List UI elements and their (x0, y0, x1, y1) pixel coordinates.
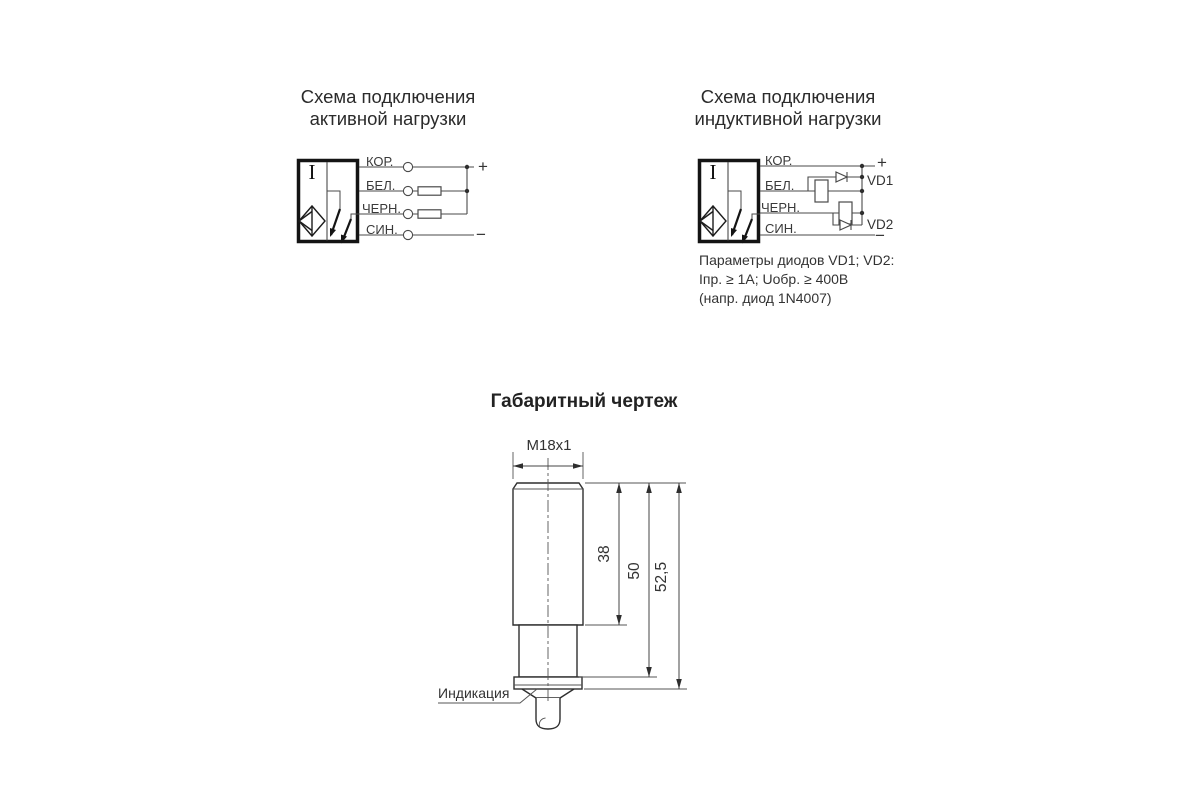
diode-note-line3: (напр. диод 1N4007) (699, 290, 832, 306)
minus-terminal-label: − (474, 225, 488, 245)
dim-arrow (616, 483, 622, 493)
diode-vd1-icon (836, 172, 847, 182)
diode-label-vd1: VD1 (867, 173, 893, 188)
inductive-load (815, 180, 828, 202)
wire-label-black: ЧЕРН. (362, 201, 401, 216)
dim-label-38: 38 (596, 537, 614, 571)
wire-label-white: БЕЛ. (366, 178, 395, 193)
diode-note-line2: Iпр. ≥ 1А; Uобр. ≥ 400В (699, 271, 848, 287)
diode-label-vd2: VD2 (867, 217, 893, 232)
datasheet-page: Схема подключения активной нагрузки I КО… (0, 0, 1200, 800)
dim-arrow (513, 463, 523, 469)
terminal-circle (403, 162, 412, 171)
junction-dot (860, 211, 864, 215)
load-resistor (418, 187, 441, 195)
dim-arrow (676, 483, 682, 493)
junction-dot (465, 189, 469, 193)
active-schematic-title-line2: активной нагрузки (278, 108, 498, 130)
dim-arrow (573, 463, 583, 469)
sensor-marking: I (705, 160, 721, 185)
plus-terminal-label: + (476, 157, 490, 177)
terminal-circle (403, 209, 412, 218)
wire-label-blue: СИН. (366, 222, 398, 237)
wire-label-white: БЕЛ. (765, 178, 794, 193)
indication-label: Индикация (438, 685, 509, 701)
dim-arrow (676, 679, 682, 689)
load-resistor (418, 210, 441, 218)
wire-label-brown: КОР. (765, 153, 792, 168)
active-schematic-title-line1: Схема подключения (278, 86, 498, 108)
thread-size-label: M18x1 (519, 437, 579, 454)
inductive-schematic-title-line1: Схема подключения (678, 86, 898, 108)
dim-arrow (646, 483, 652, 493)
terminal-circle (403, 230, 412, 239)
sensor-marking: I (304, 160, 320, 185)
junction-dot (860, 175, 864, 179)
diode-note-line1: Параметры диодов VD1; VD2: (699, 252, 894, 268)
inductive-schematic-title-line2: индуктивной нагрузки (678, 108, 898, 130)
dim-label-50: 50 (626, 554, 644, 588)
dimension-drawing-title: Габаритный чертеж (434, 391, 734, 413)
plus-terminal-label: + (875, 153, 889, 173)
junction-dot (860, 164, 864, 168)
dim-arrow (646, 667, 652, 677)
wire-label-blue: СИН. (765, 221, 797, 236)
terminal-circle (403, 186, 412, 195)
wire-label-black: ЧЕРН. (761, 200, 800, 215)
dim-label-52-5: 52,5 (653, 560, 671, 594)
junction-dot (860, 189, 864, 193)
wire-label-brown: КОР. (366, 154, 393, 169)
junction-dot (465, 165, 469, 169)
dim-arrow (616, 615, 622, 625)
